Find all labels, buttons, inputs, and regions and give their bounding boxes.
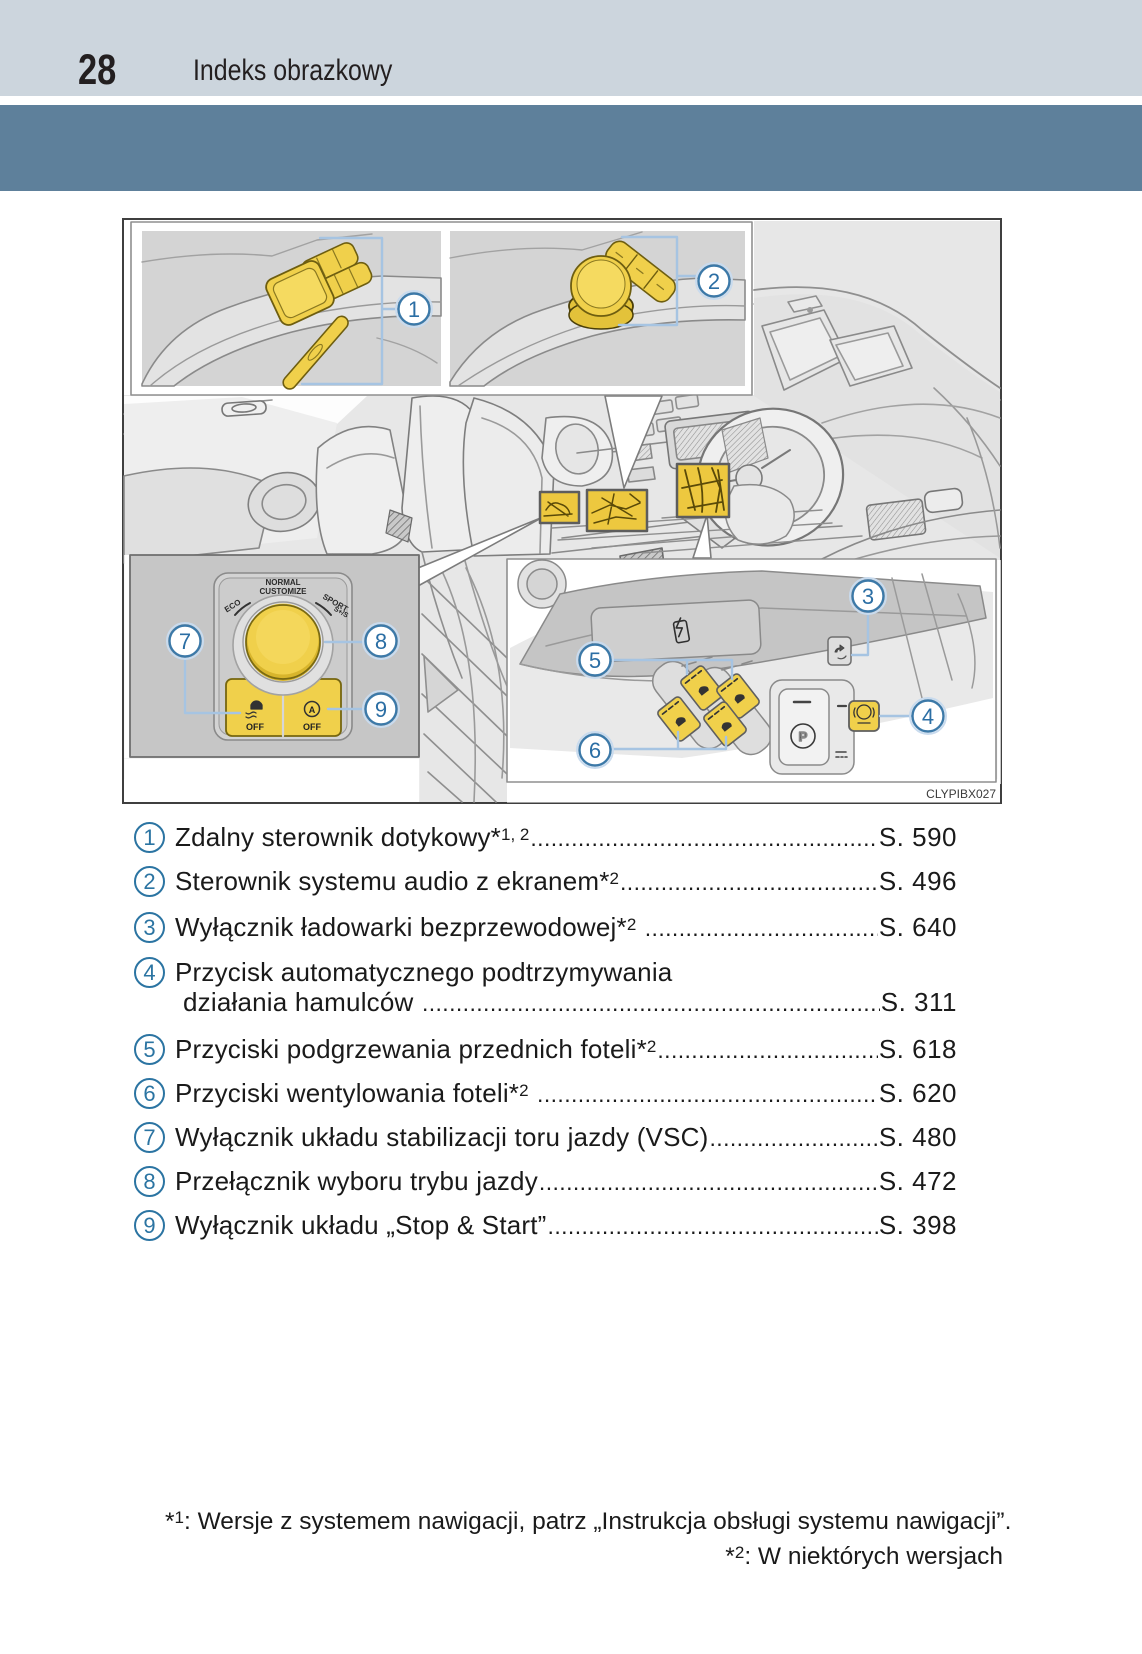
svg-text:3: 3 — [862, 584, 874, 609]
svg-text:2: 2 — [708, 269, 720, 294]
svg-text:8: 8 — [375, 629, 387, 654]
svg-text:5: 5 — [589, 648, 601, 673]
svg-text:CLYPIBX027: CLYPIBX027 — [926, 787, 996, 801]
svg-text:A: A — [309, 705, 316, 715]
svg-text:4: 4 — [922, 704, 934, 729]
svg-text:NORMAL: NORMAL — [265, 578, 300, 587]
svg-text:OFF: OFF — [303, 722, 321, 732]
svg-text:1: 1 — [408, 297, 420, 322]
svg-text:9: 9 — [375, 697, 387, 722]
svg-text:6: 6 — [589, 738, 601, 763]
svg-text:P: P — [799, 729, 808, 744]
svg-text:OFF: OFF — [246, 722, 264, 732]
svg-text:7: 7 — [179, 629, 191, 654]
